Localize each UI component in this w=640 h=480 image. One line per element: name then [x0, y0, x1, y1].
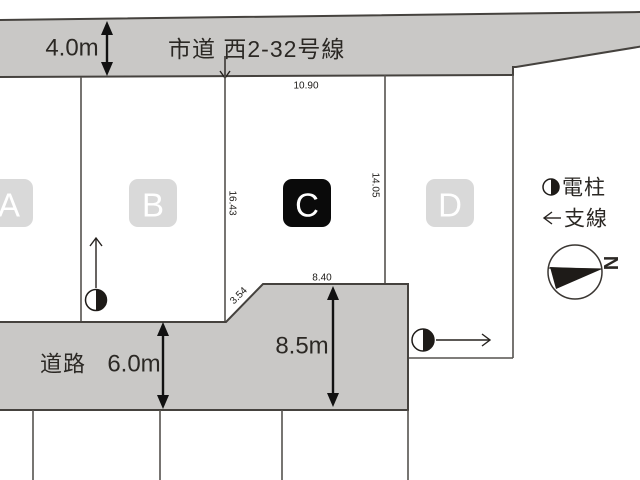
dim-cd-depth: 14.05 — [370, 172, 381, 197]
north-compass-icon — [548, 245, 602, 299]
north-label: N — [599, 256, 621, 270]
utility-pole-1-icon — [86, 290, 107, 311]
top-road: 市道 西2-32号線 4.0m — [0, 12, 640, 78]
guy-wire-arrow-2-icon — [436, 334, 490, 346]
top-road-name: 市道 西2-32号線 — [168, 36, 345, 62]
bottom-road-shape — [0, 284, 408, 410]
guy-wire-arrow-1-icon — [90, 238, 102, 288]
legend-guywire-label: 支線 — [564, 208, 608, 231]
lot-label-c: C — [295, 187, 319, 224]
bottom-road: 道路 6.0m 8.5m — [0, 284, 408, 410]
site-plan: 市道 西2-32号線 4.0m 道路 6.0m 8.5m — [0, 0, 640, 480]
dim-pocket-top-width: 8.40 — [312, 273, 332, 284]
legend: 電柱 支線 N — [543, 177, 621, 300]
pocket-depth-label: 8.5m — [275, 333, 328, 360]
legend-pole-label: 電柱 — [562, 177, 606, 200]
bottom-road-name: 道路 — [40, 352, 86, 377]
dim-bc-depth: 16.43 — [227, 190, 238, 215]
legend-pole-icon — [543, 179, 559, 195]
lot-label-d: D — [438, 187, 462, 224]
dim-lot-c-frontage: 10.90 — [293, 81, 318, 92]
utility-pole-2-icon — [412, 329, 434, 351]
bottom-road-width-label: 6.0m — [107, 351, 160, 378]
top-road-width-label: 4.0m — [45, 35, 98, 62]
legend-guywire-icon — [544, 212, 561, 224]
lower-lot-lines — [33, 410, 408, 480]
lot-label-a: A — [0, 187, 20, 224]
lot-label-b: B — [142, 187, 164, 224]
